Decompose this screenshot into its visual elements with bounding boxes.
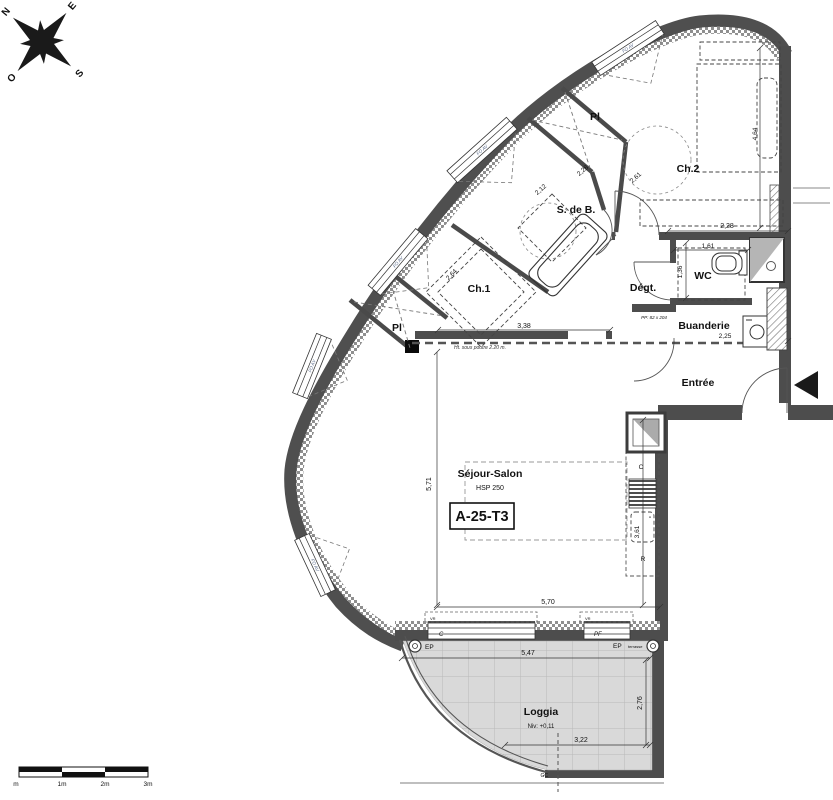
room-ch2: Ch.2 bbox=[677, 163, 700, 175]
dim-ch2-w: 2,28 bbox=[720, 223, 734, 230]
shower bbox=[750, 238, 784, 282]
shutter-label: VR bbox=[585, 616, 591, 621]
compass-o: O bbox=[5, 72, 19, 85]
dim-ch1-w: 3,38 bbox=[517, 323, 531, 330]
room-sejour-hsp: HSP 250 bbox=[476, 485, 504, 492]
scale-2m: 2m bbox=[100, 781, 109, 788]
technical-shaft bbox=[627, 413, 665, 452]
bathtub bbox=[527, 212, 610, 299]
ep-right-label: EP bbox=[613, 643, 622, 650]
terrasse-label: terrasse bbox=[628, 644, 643, 649]
kitchen-c: C bbox=[639, 464, 644, 471]
gc-label: GC bbox=[541, 773, 549, 779]
shaft-hatch bbox=[767, 288, 787, 350]
interior-partitions bbox=[350, 88, 626, 351]
dim-wc-w: 1,61 bbox=[702, 243, 715, 250]
window-pf-label: PF bbox=[594, 632, 602, 638]
room-loggia: Loggia bbox=[524, 706, 559, 718]
dim-kitchen-h: 3,61 bbox=[634, 525, 641, 538]
closet-marks bbox=[354, 92, 622, 348]
floor-plan-page: N E S O bbox=[0, 0, 833, 800]
room-buanderie: Buanderie bbox=[678, 320, 730, 332]
floor-plan-drawing: N E S O bbox=[0, 0, 833, 800]
room-degt: Dégt. bbox=[630, 282, 656, 294]
south-windows: C VR PF VR bbox=[425, 612, 633, 639]
dim-sdb-b: 2,12 bbox=[534, 183, 548, 197]
dim-loggia-h: 2,76 bbox=[637, 696, 644, 710]
dim-loggia-inner: 3,22 bbox=[574, 737, 588, 744]
door-size-note: PP: 82 x 204 bbox=[641, 315, 667, 320]
unit-code: A-25-T3 bbox=[455, 509, 508, 525]
scale-3m: 3m bbox=[143, 781, 152, 788]
kitchen-hob bbox=[629, 479, 656, 508]
party-wall-joint bbox=[791, 183, 833, 208]
kitchen-mark: " bbox=[649, 516, 652, 523]
room-entree: Entrée bbox=[682, 377, 715, 389]
scale-0: m bbox=[13, 781, 18, 788]
dim-buanderie-w: 2,25 bbox=[719, 333, 732, 340]
room-pl-upper: Pl bbox=[590, 111, 600, 123]
ep-left-label: EP bbox=[425, 644, 434, 651]
loggia-level: Niv: +0,11 bbox=[528, 724, 555, 730]
dim-loggia-w: 5,47 bbox=[521, 650, 535, 657]
compass-s: S bbox=[74, 67, 87, 79]
room-pl-lower: Pl bbox=[392, 322, 402, 334]
room-ch1: Ch.1 bbox=[468, 283, 491, 295]
dim-ch2-h: 4,64 bbox=[752, 127, 759, 140]
scale-1m: 1m bbox=[57, 781, 66, 788]
dim-ch1-diag: 2,64 bbox=[445, 268, 459, 282]
dim-ch2-left: 2,61 bbox=[629, 171, 643, 185]
dim-wc-h: 1,36 bbox=[677, 265, 684, 278]
room-sdb: S. de B. bbox=[557, 204, 596, 216]
compass-e: E bbox=[66, 0, 79, 12]
shutter-label: VR bbox=[430, 616, 436, 621]
window-c-label: C bbox=[439, 632, 444, 638]
room-wc: WC bbox=[694, 270, 712, 282]
kitchen-r: R bbox=[641, 556, 646, 563]
unit-code-badge: A-25-T3 bbox=[450, 503, 514, 529]
toilet bbox=[712, 251, 747, 275]
dim-sejour-h: 5,71 bbox=[426, 477, 433, 491]
entry-arrow-icon bbox=[794, 371, 818, 399]
compass-n: N bbox=[0, 6, 13, 19]
scale-bar: m 1m 2m 3m bbox=[13, 767, 152, 788]
compass-rose-icon: N E S O bbox=[0, 0, 117, 116]
dim-sejour-w: 5,70 bbox=[541, 599, 555, 606]
room-sejour: Séjour-Salon bbox=[458, 468, 523, 480]
